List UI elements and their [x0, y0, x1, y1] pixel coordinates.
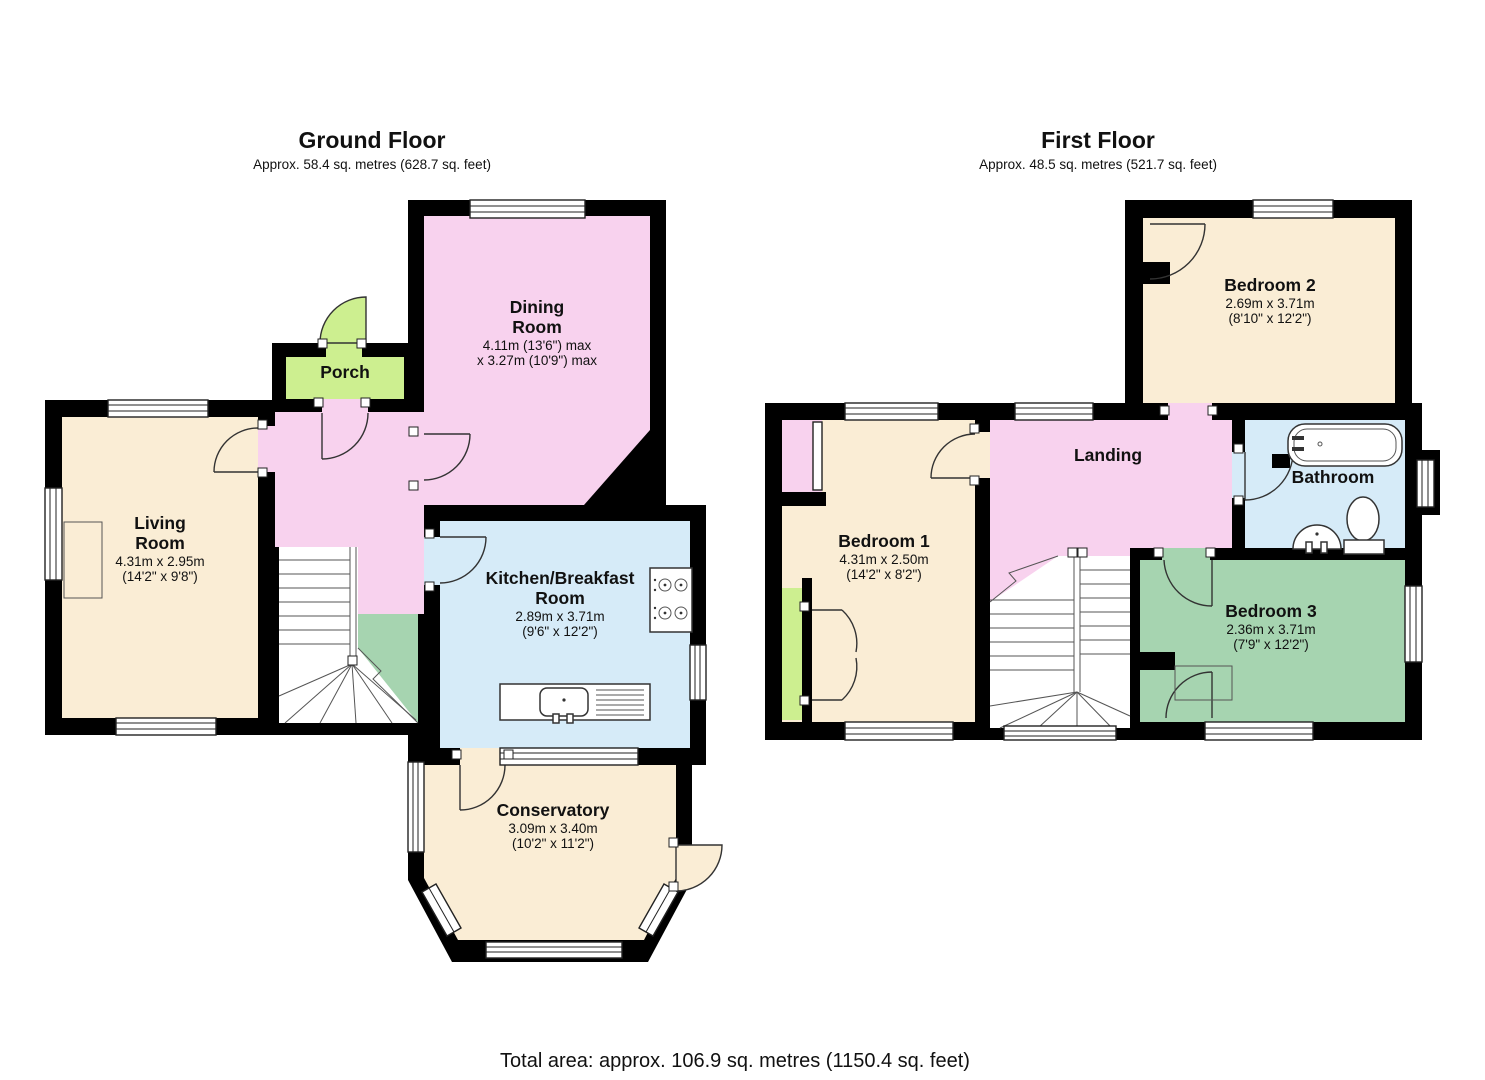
conservatory-label: Conservatory 3.09m x 3.40m (10'2" x 11'2…: [497, 801, 610, 852]
bedroom1-label: Bedroom 1 4.31m x 2.50m (14'2" x 8'2"): [838, 532, 929, 583]
front-door-arc: [320, 297, 366, 343]
kitchen-window-right: [690, 645, 706, 700]
dining-room-name1: Dining: [477, 298, 597, 318]
kitchen-window-bottom: [500, 748, 638, 765]
bathroom-label: Bathroom: [1292, 468, 1375, 488]
living-room-name1: Living: [115, 514, 204, 534]
kitchen-name2: Room: [486, 589, 635, 609]
living-room-label: Living Room 4.31m x 2.95m (14'2" x 9'8"): [115, 514, 204, 585]
ground-floor-subtitle: Approx. 58.4 sq. metres (628.7 sq. feet): [253, 157, 491, 172]
total-area-text: Total area: approx. 106.9 sq. metres (11…: [500, 1050, 970, 1073]
bedroom2-dim2: (8'10" x 12'2"): [1224, 311, 1315, 326]
living-window-top: [108, 400, 208, 417]
first-floor-title-text: First Floor: [979, 127, 1217, 154]
porch-label: Porch: [320, 363, 370, 383]
first-floor-title: First Floor Approx. 48.5 sq. metres (521…: [979, 127, 1217, 172]
living-window-bottom: [116, 718, 216, 735]
ground-floor-title-text: Ground Floor: [253, 127, 491, 154]
bathroom-window-right: [1417, 460, 1434, 507]
bedroom3-dim2: (7'9" x 12'2"): [1225, 637, 1316, 652]
bedroom2-window: [1253, 200, 1333, 218]
kitchen-dim2: (9'6" x 12'2"): [486, 624, 635, 639]
landing-name: Landing: [1074, 446, 1142, 466]
bedroom3-dim1: 2.36m x 3.71m: [1225, 622, 1316, 637]
living-window-left: [45, 488, 62, 580]
wardrobe-floor: [782, 588, 802, 720]
stairs-window-bottom: [1004, 726, 1116, 740]
bathroom-name: Bathroom: [1292, 468, 1375, 488]
bathtub-icon: [1288, 424, 1402, 466]
conservatory-window-left: [408, 762, 424, 852]
bedroom2-dim1: 2.69m x 3.71m: [1224, 296, 1315, 311]
kitchen-label: Kitchen/Breakfast Room 2.89m x 3.71m (9'…: [486, 569, 635, 640]
living-room-name2: Room: [115, 534, 204, 554]
dining-room-label: Dining Room 4.11m (13'6") max x 3.27m (1…: [477, 298, 597, 369]
porch-name: Porch: [320, 363, 370, 383]
conservatory-floor: [424, 765, 676, 940]
first-floor-subtitle: Approx. 48.5 sq. metres (521.7 sq. feet): [979, 157, 1217, 172]
conservatory-dim1: 3.09m x 3.40m: [497, 821, 610, 836]
conservatory-dim2: (10'2" x 11'2"): [497, 836, 610, 851]
bedroom2-name: Bedroom 2: [1224, 276, 1315, 296]
ground-floor-title: Ground Floor Approx. 58.4 sq. metres (62…: [253, 127, 491, 172]
landing-floor: [990, 420, 1232, 556]
bedroom1-dim2: (14'2" x 8'2"): [838, 567, 929, 582]
kitchen-sink-icon: [500, 684, 650, 723]
dining-window: [470, 200, 585, 218]
bedroom3-window-bottom: [1205, 722, 1313, 740]
dining-room-dim1: 4.11m (13'6") max: [477, 338, 597, 353]
conservatory-window-bottom: [486, 942, 622, 958]
bedroom1-window-bottom: [845, 722, 953, 740]
bedroom1-dim1: 4.31m x 2.50m: [838, 552, 929, 567]
bedroom3-name: Bedroom 3: [1225, 602, 1316, 622]
conservatory-name: Conservatory: [497, 801, 610, 821]
landing-window: [1015, 403, 1093, 420]
floorplan-drawing: [0, 0, 1485, 1080]
kitchen-name1: Kitchen/Breakfast: [486, 569, 635, 589]
dining-room-dim2: x 3.27m (10'9") max: [477, 353, 597, 368]
bedroom1-name: Bedroom 1: [838, 532, 929, 552]
bedroom3-window-right: [1405, 586, 1422, 662]
bedroom3-label: Bedroom 3 2.36m x 3.71m (7'9" x 12'2"): [1225, 602, 1316, 653]
stove-icon: [650, 568, 692, 632]
living-room-dim1: 4.31m x 2.95m: [115, 554, 204, 569]
kitchen-dim1: 2.89m x 3.71m: [486, 609, 635, 624]
living-room-dim2: (14'2" x 9'8"): [115, 569, 204, 584]
dining-room-name2: Room: [477, 318, 597, 338]
bedroom2-label: Bedroom 2 2.69m x 3.71m (8'10" x 12'2"): [1224, 276, 1315, 327]
landing-label: Landing: [1074, 446, 1142, 466]
garden-door-arc: [676, 845, 722, 891]
floorplan-page: Ground Floor Approx. 58.4 sq. metres (62…: [0, 0, 1485, 1080]
bedroom1-window-top: [845, 403, 938, 420]
nook-jamb-strip: [813, 422, 822, 490]
